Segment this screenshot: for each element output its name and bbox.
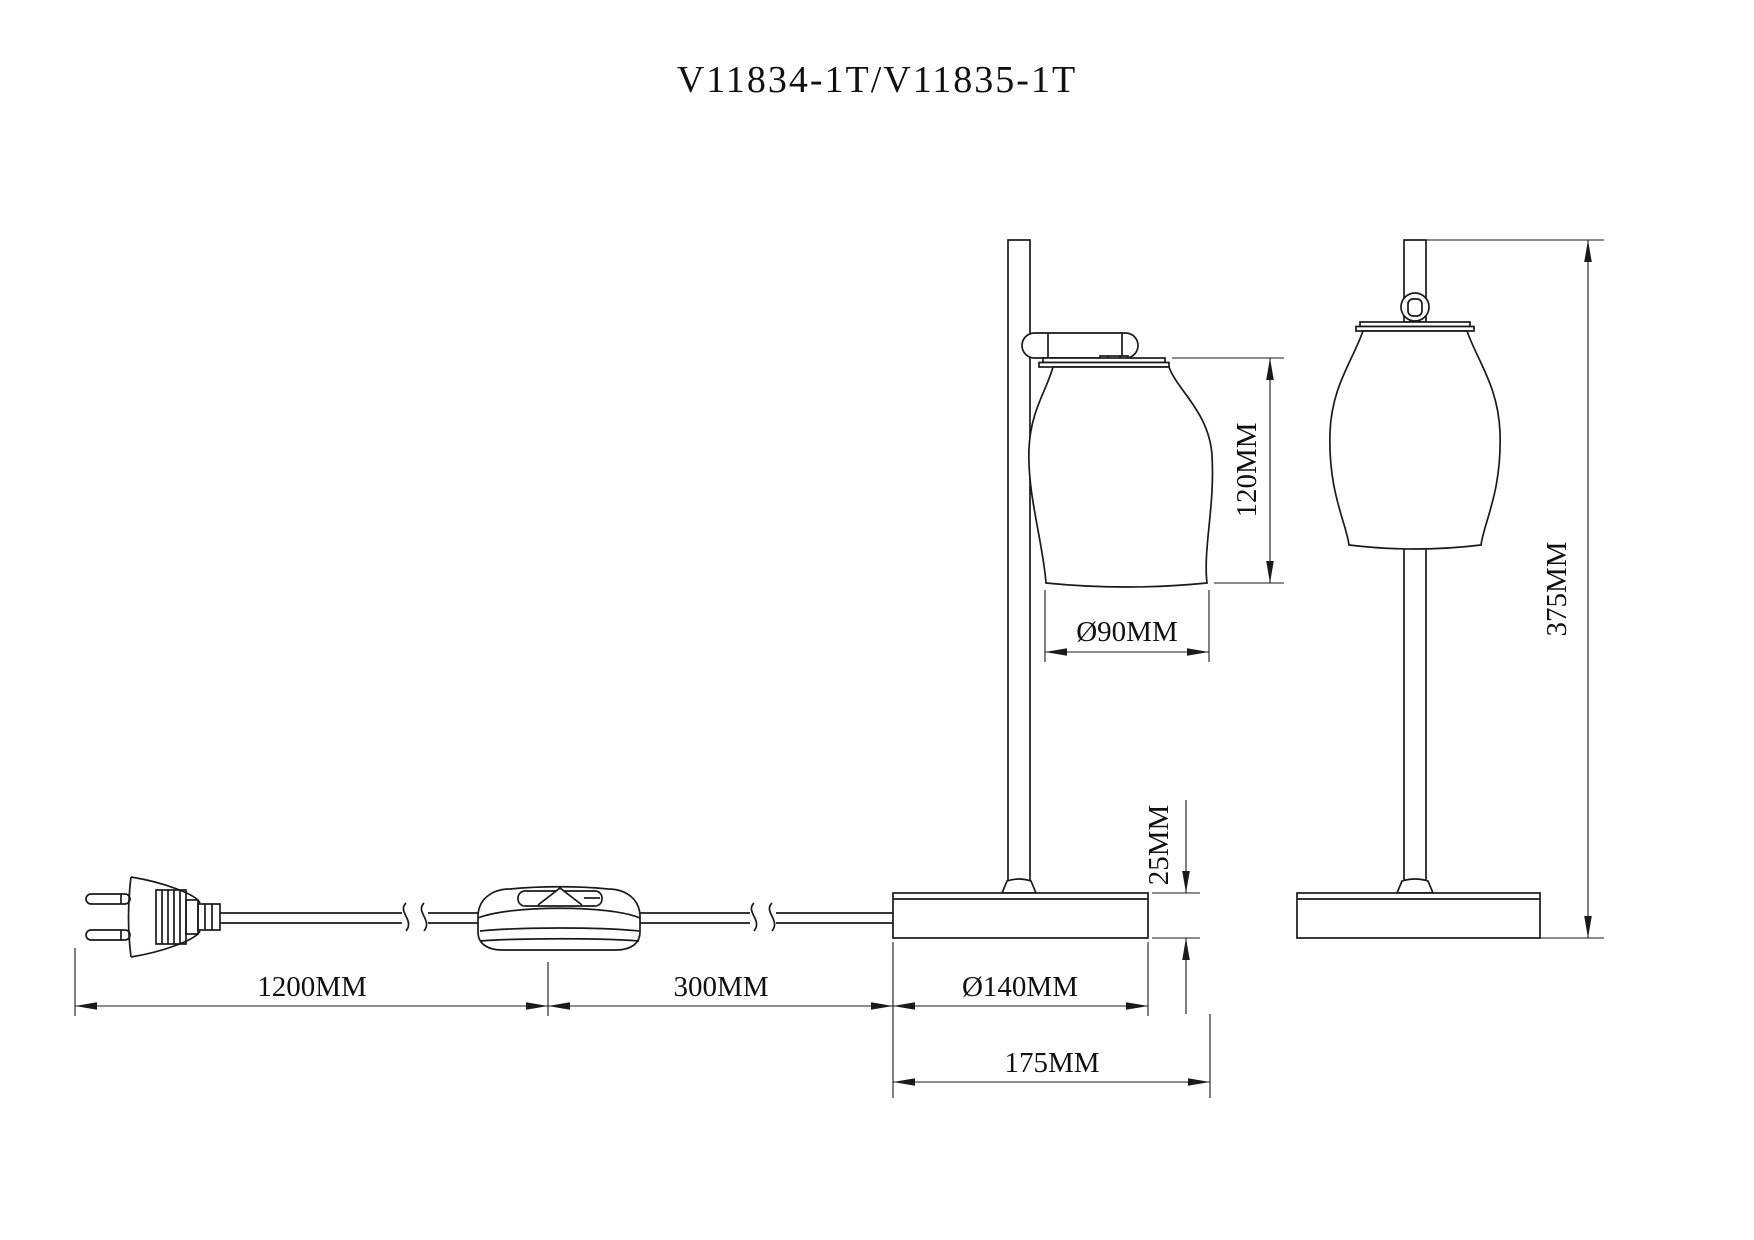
plug-strain-relief	[198, 904, 220, 930]
plug-pin-top	[86, 894, 130, 904]
arrowhead	[1182, 938, 1190, 960]
dim-base-overall-width: 175MM	[893, 1014, 1210, 1098]
inline-switch	[478, 887, 640, 950]
arrowhead	[1182, 871, 1190, 893]
dim-label-base-height: 25MM	[1143, 805, 1175, 886]
arrowhead	[871, 1002, 893, 1010]
dim-label-total-height: 375MM	[1541, 541, 1573, 636]
arrowhead	[1126, 1002, 1148, 1010]
arrowhead	[1584, 916, 1592, 938]
arrowhead	[893, 1078, 915, 1086]
drawing-sheet: V11834-1T/V11835-1T	[0, 0, 1754, 1240]
dim-label-shade-diameter: Ø90MM	[1076, 616, 1178, 648]
cord-break-mark	[403, 903, 408, 931]
dim-label-cord-length: 1200MM	[257, 971, 367, 1003]
arrowhead	[1584, 240, 1592, 262]
dim-switch-section: 300MM	[548, 971, 893, 1010]
arrowhead	[526, 1002, 548, 1010]
dim-shade-diameter: Ø90MM	[1045, 590, 1209, 662]
side-glass-shade	[1029, 367, 1213, 587]
arrowhead	[75, 1002, 97, 1010]
dim-cord-length: 1200MM	[75, 948, 548, 1016]
power-plug	[86, 877, 220, 957]
dim-base-height: 25MM	[1143, 800, 1200, 1014]
arrowhead	[548, 1002, 570, 1010]
cord-break-mark	[421, 903, 426, 931]
dim-label-base-overall-width: 175MM	[1004, 1047, 1099, 1079]
arrowhead	[1266, 561, 1274, 583]
arrowhead	[1045, 648, 1067, 656]
dim-label-shade-height: 120MM	[1231, 422, 1263, 517]
arrowhead	[1266, 358, 1274, 380]
plug-body-left	[129, 877, 132, 957]
dim-label-switch-section: 300MM	[673, 971, 768, 1003]
arrowhead	[1187, 648, 1209, 656]
front-hanger-ring-inner	[1408, 299, 1422, 316]
plug-neck-step	[186, 900, 198, 934]
side-arm	[1022, 333, 1138, 358]
front-pole-lower	[1404, 545, 1426, 881]
arrowhead	[1188, 1078, 1210, 1086]
front-pole-collar	[1397, 879, 1433, 893]
side-pole-collar	[1002, 879, 1036, 893]
plug-pin-bottom	[86, 930, 130, 940]
cord-break-mark	[751, 903, 756, 931]
technical-drawing: V11834-1T/V11835-1T	[0, 0, 1754, 1240]
plug-grip-ribs	[156, 890, 186, 944]
front-glass-shade	[1330, 331, 1500, 549]
dim-label-base-diameter: Ø140MM	[962, 971, 1078, 1003]
drawing-title: V11834-1T/V11835-1T	[677, 59, 1077, 101]
front-view-lamp	[1297, 240, 1540, 938]
arrowhead	[893, 1002, 915, 1010]
cord-break-mark	[769, 903, 774, 931]
